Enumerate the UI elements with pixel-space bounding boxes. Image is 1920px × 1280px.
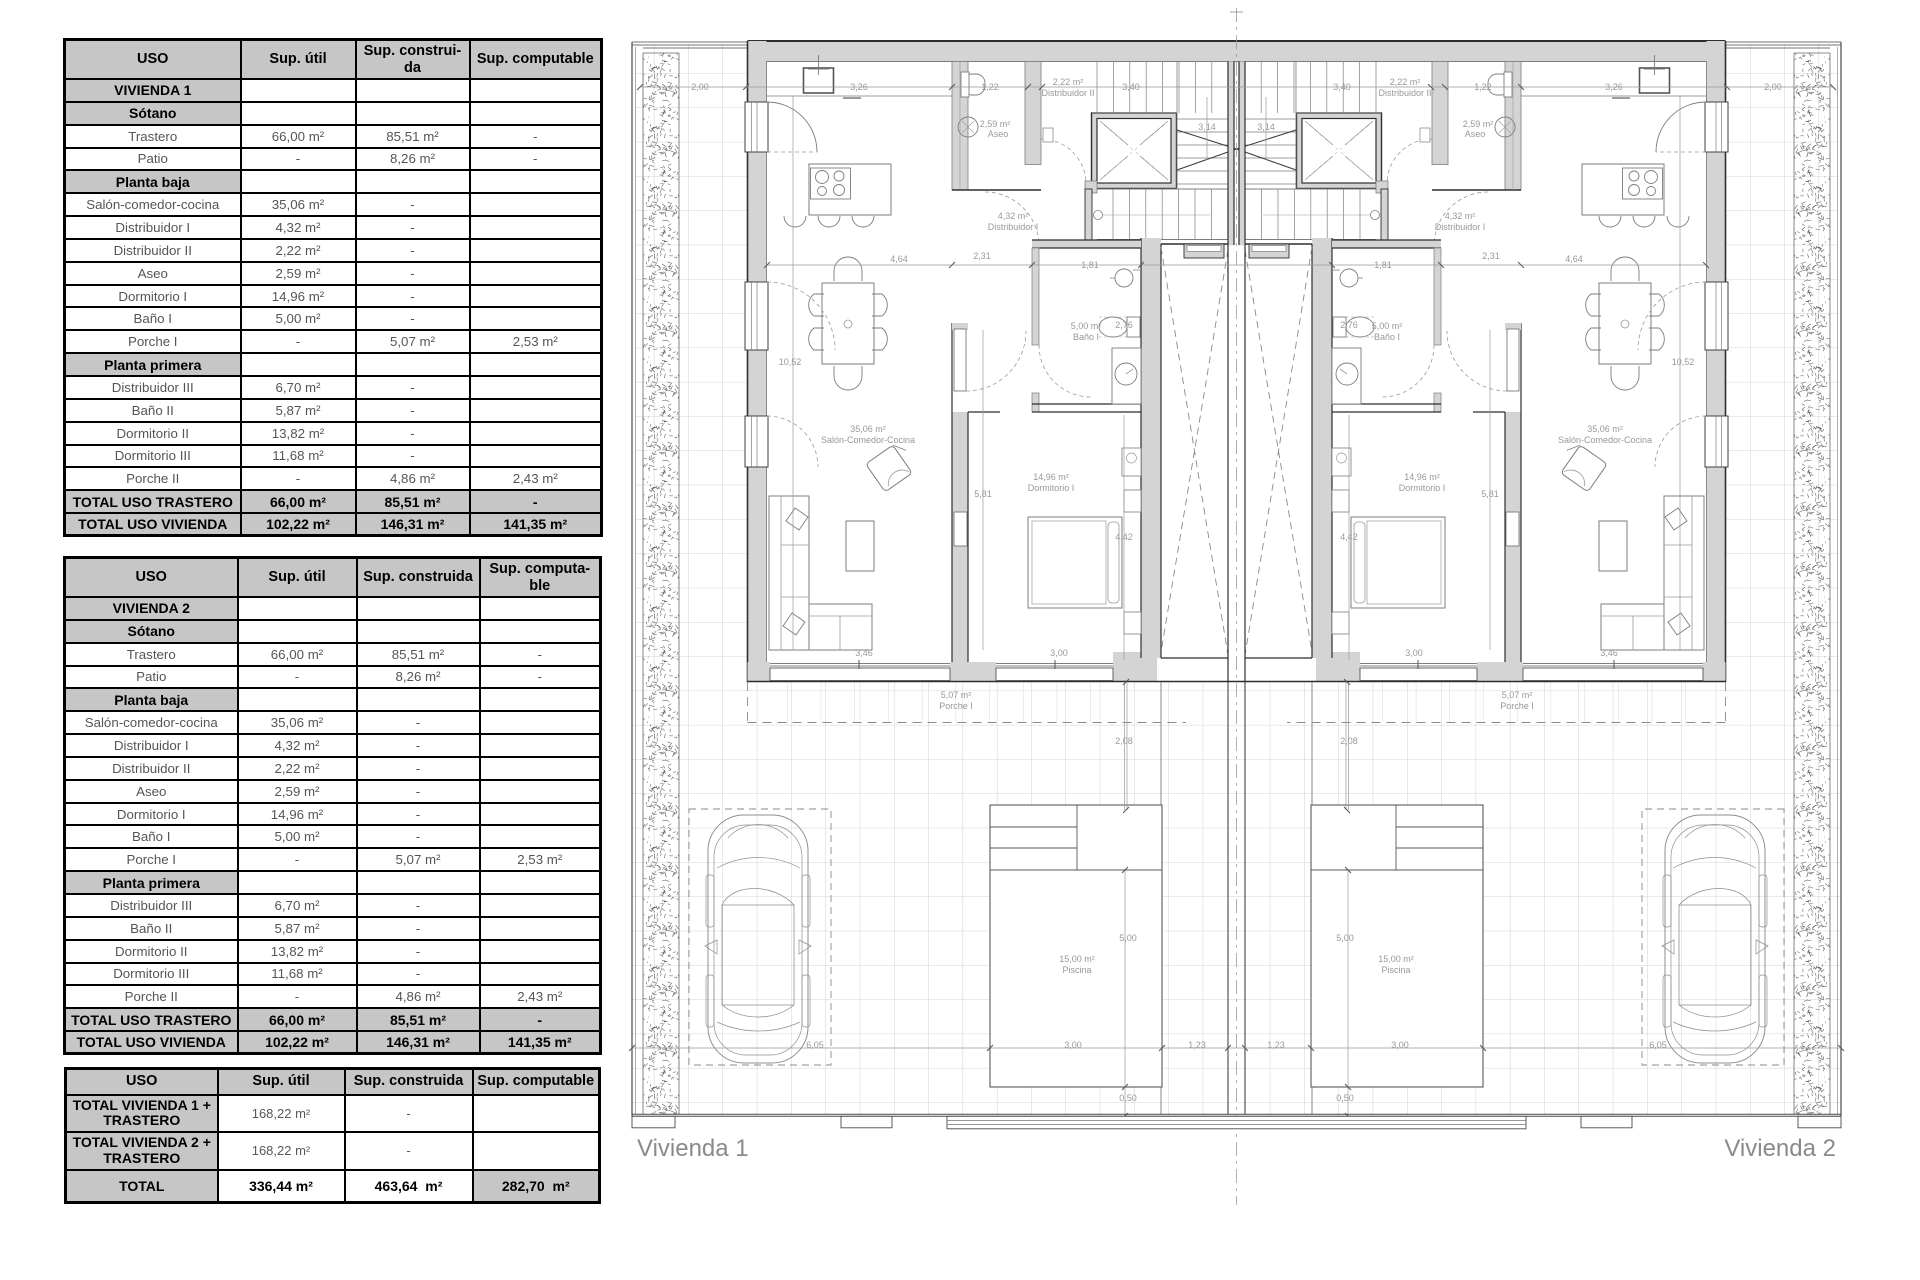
- svg-text:Distribuidor II: Distribuidor II: [1378, 88, 1431, 98]
- svg-text:0,50: 0,50: [1119, 1093, 1137, 1103]
- svg-text:1,22: 1,22: [1474, 82, 1492, 92]
- svg-text:Piscina: Piscina: [1062, 965, 1091, 975]
- svg-text:Porche I: Porche I: [1500, 701, 1534, 711]
- svg-text:10,52: 10,52: [779, 357, 802, 367]
- svg-text:2,22 m²: 2,22 m²: [1390, 77, 1421, 87]
- svg-text:5,00 m²: 5,00 m²: [1372, 321, 1403, 331]
- svg-text:5,00: 5,00: [1119, 933, 1137, 943]
- svg-text:5,00 m²: 5,00 m²: [1071, 321, 1102, 331]
- svg-text:Distribuidor II: Distribuidor II: [1041, 88, 1094, 98]
- svg-text:4,64: 4,64: [890, 254, 908, 264]
- svg-text:Vivienda 1: Vivienda 1: [637, 1135, 749, 1162]
- svg-text:3,00: 3,00: [1391, 1040, 1409, 1050]
- svg-text:35,06 m²: 35,06 m²: [1587, 424, 1623, 434]
- svg-text:5,07 m²: 5,07 m²: [941, 690, 972, 700]
- svg-text:4,32 m²: 4,32 m²: [998, 211, 1029, 221]
- svg-text:5,00: 5,00: [1336, 933, 1354, 943]
- svg-text:3,14: 3,14: [1198, 122, 1216, 132]
- svg-text:2,59 m²: 2,59 m²: [1463, 119, 1494, 129]
- svg-text:2,00: 2,00: [1764, 82, 1782, 92]
- svg-text:2,08: 2,08: [1340, 736, 1358, 746]
- svg-text:3,14: 3,14: [1257, 122, 1275, 132]
- svg-text:4,32 m²: 4,32 m²: [1445, 211, 1476, 221]
- svg-text:2,76: 2,76: [1115, 320, 1133, 330]
- svg-text:1,81: 1,81: [1374, 260, 1392, 270]
- svg-text:6,05: 6,05: [1649, 1040, 1667, 1050]
- svg-text:Salón-Comedor-Cocina: Salón-Comedor-Cocina: [821, 435, 915, 445]
- svg-text:15,00 m²: 15,00 m²: [1059, 954, 1095, 964]
- svg-text:Piscina: Piscina: [1381, 965, 1410, 975]
- svg-text:5,81: 5,81: [974, 489, 992, 499]
- svg-text:2,31: 2,31: [973, 251, 991, 261]
- svg-text:Dormitorio I: Dormitorio I: [1028, 483, 1075, 493]
- svg-text:3,46: 3,46: [855, 648, 873, 658]
- svg-text:2,31: 2,31: [1482, 251, 1500, 261]
- svg-text:2,59 m²: 2,59 m²: [980, 119, 1011, 129]
- svg-text:1,81: 1,81: [1081, 260, 1099, 270]
- svg-text:0,50: 0,50: [1336, 1093, 1354, 1103]
- svg-text:4,42: 4,42: [1115, 532, 1133, 542]
- svg-text:1,23: 1,23: [1267, 1040, 1285, 1050]
- svg-text:3,26: 3,26: [1605, 82, 1623, 92]
- svg-text:Porche I: Porche I: [939, 701, 973, 711]
- svg-text:14,96 m²: 14,96 m²: [1033, 472, 1069, 482]
- svg-text:3,40: 3,40: [1122, 82, 1140, 92]
- svg-text:10,52: 10,52: [1672, 357, 1695, 367]
- svg-text:14,96 m²: 14,96 m²: [1404, 472, 1440, 482]
- svg-text:5,07 m²: 5,07 m²: [1502, 690, 1533, 700]
- svg-text:Aseo: Aseo: [988, 129, 1009, 139]
- svg-text:2,76: 2,76: [1340, 320, 1358, 330]
- svg-text:Dormitorio I: Dormitorio I: [1399, 483, 1446, 493]
- svg-text:1,23: 1,23: [1188, 1040, 1206, 1050]
- svg-text:Baño I: Baño I: [1374, 332, 1400, 342]
- svg-text:2,08: 2,08: [1115, 736, 1133, 746]
- svg-text:Baño I: Baño I: [1073, 332, 1099, 342]
- svg-text:6,05: 6,05: [806, 1040, 824, 1050]
- svg-text:Distribuidor I: Distribuidor I: [988, 222, 1039, 232]
- svg-text:3,00: 3,00: [1405, 648, 1423, 658]
- svg-text:4,42: 4,42: [1340, 532, 1358, 542]
- svg-text:Aseo: Aseo: [1465, 129, 1486, 139]
- svg-text:3,00: 3,00: [1064, 1040, 1082, 1050]
- svg-text:3,40: 3,40: [1333, 82, 1351, 92]
- svg-text:4,64: 4,64: [1565, 254, 1583, 264]
- svg-text:5,81: 5,81: [1481, 489, 1499, 499]
- svg-text:2,00: 2,00: [691, 82, 709, 92]
- svg-text:Salón-Comedor-Cocina: Salón-Comedor-Cocina: [1558, 435, 1652, 445]
- svg-text:3,46: 3,46: [1600, 648, 1618, 658]
- svg-text:3,00: 3,00: [1050, 648, 1068, 658]
- svg-text:Vivienda 2: Vivienda 2: [1724, 1135, 1836, 1162]
- svg-text:3,26: 3,26: [850, 82, 868, 92]
- svg-text:35,06 m²: 35,06 m²: [850, 424, 886, 434]
- svg-text:2,22 m²: 2,22 m²: [1053, 77, 1084, 87]
- svg-text:15,00 m²: 15,00 m²: [1378, 954, 1414, 964]
- svg-text:Distribuidor I: Distribuidor I: [1435, 222, 1486, 232]
- svg-text:1,22: 1,22: [981, 82, 999, 92]
